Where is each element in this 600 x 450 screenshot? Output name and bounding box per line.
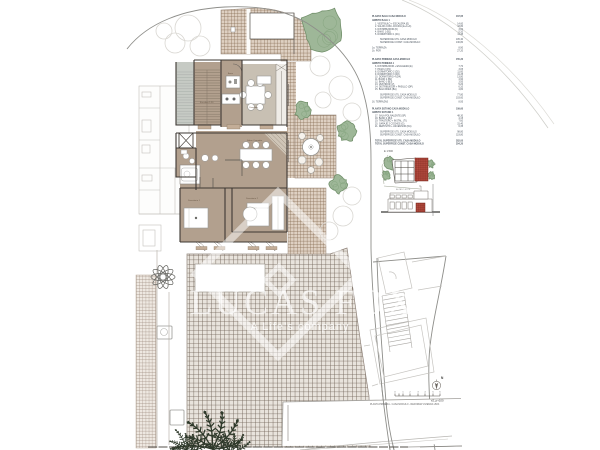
svg-text:PLANTA PRIMERA CASA MODULO: PLANTA PRIMERA CASA MODULO (372, 58, 410, 61)
svg-text:8,90: 8,90 (459, 48, 464, 50)
svg-text:109,60: 109,60 (456, 109, 464, 111)
svg-text:18. BANO 4 (B4): 18. BANO 4 (B4) (375, 117, 392, 120)
svg-text:AMBITO BAJA 1: AMBITO BAJA 1 (372, 19, 390, 22)
svg-text:12. BANO 3 (B3): 12. BANO 3 (B3) (375, 81, 392, 84)
svg-text:Terraza: Terraza (303, 129, 311, 132)
svg-text:119,80: 119,80 (456, 135, 464, 137)
svg-text:AMBITO SOTANO 1: AMBITO SOTANO 1 (372, 111, 394, 114)
svg-text:130,80: 130,80 (456, 42, 464, 44)
svg-text:SUPERFICIE UTIL CASA MODULO: SUPERFICIE UTIL CASA MODULO (380, 38, 417, 41)
svg-text:6,35: 6,35 (459, 126, 464, 128)
svg-text:PLANTA PRIMERA - CASA MODULO -: PLANTA PRIMERA - CASA MODULO - REFORMA V… (370, 403, 440, 406)
svg-text:16. TERRAZAS: 16. TERRAZAS (372, 101, 389, 104)
svg-text:21. DEPOSITO + ASCENSOR (DA): 21. DEPOSITO + ASCENSOR (DA) (375, 125, 412, 128)
svg-text:19. TRASTERO + INSTAL. (TI): 19. TRASTERO + INSTAL. (TI) (375, 120, 407, 123)
svg-text:8,95: 8,95 (459, 102, 464, 104)
svg-text:6. DISTRIBUIDOR + ESCALERA (E): 6. DISTRIBUIDOR + ESCALERA (E) (375, 65, 413, 68)
svg-text:LUCAS FOX: LUCAS FOX (190, 282, 416, 322)
svg-text:ALZADO ESTE: ALZADO ESTE (396, 188, 411, 191)
svg-text:SUPERFICIE CONST. CASA MODULO: SUPERFICIE CONST. CASA MODULO (380, 134, 421, 137)
svg-text:20. GARAJE 2 COCHES (G): 20. GARAJE 2 COCHES (G) (375, 122, 405, 125)
svg-text:27,20: 27,20 (457, 51, 463, 53)
svg-text:SUPERFICIE CONST. CASA MODULO: SUPERFICIE CONST. CASA MODULO (380, 41, 421, 44)
svg-text:5. DORMITORIO 1 (D1): 5. DORMITORIO 1 (D1) (375, 34, 400, 36)
svg-text:105,40: 105,40 (456, 39, 464, 41)
svg-text:E 1:500: E 1:500 (384, 149, 393, 153)
svg-text:SUPERFICIE UTIL CASA MODULO: SUPERFICIE UTIL CASA MODULO (380, 131, 417, 134)
svg-text:103,60: 103,60 (456, 98, 464, 100)
svg-text:354,20: 354,20 (456, 143, 464, 146)
svg-text:11,45: 11,45 (457, 34, 463, 36)
svg-text:Dormitorio 1: Dormitorio 1 (188, 199, 201, 202)
svg-text:Escalera 1:50: Escalera 1:50 (200, 101, 214, 104)
svg-text:Comedor: Comedor (249, 106, 258, 109)
svg-text:SUPERFICIE UTIL CASA MODULO: SUPERFICIE UTIL CASA MODULO (380, 94, 417, 97)
svg-text:282,00: 282,00 (456, 141, 464, 143)
svg-text:2. SALON-COM.-COCINA (E+C+K): 2. SALON-COM.-COCINA (E+C+K) (375, 25, 411, 28)
svg-text:Dormitorio 2: Dormitorio 2 (246, 197, 259, 200)
svg-text:17. SALA POLIVALENTE (SP): 17. SALA POLIVALENTE (SP) (375, 115, 406, 118)
svg-text:98,80: 98,80 (457, 132, 463, 134)
svg-text:7. PASO 2 (P2): 7. PASO 2 (P2) (375, 68, 391, 71)
svg-text:4,80: 4,80 (459, 89, 464, 91)
svg-text:A Life’s company: A Life’s company (251, 321, 350, 333)
svg-text:e2_p+100: e2_p+100 (431, 399, 444, 403)
svg-text:77,80: 77,80 (457, 95, 463, 97)
svg-text:1b. POR: 1b. POR (372, 51, 381, 53)
svg-text:Aseo: Aseo (228, 72, 234, 75)
svg-text:TOTAL SUPERFICIE UTIL CASA MOD: TOTAL SUPERFICIE UTIL CASA MODULO (375, 140, 421, 143)
svg-text:1a. TERRAZA: 1a. TERRAZA (372, 47, 387, 50)
svg-text:1. VESTIBULO + ESCALERA (E): 1. VESTIBULO + ESCALERA (E) (375, 23, 409, 26)
svg-text:PLANTA SOTANO CASA MODULO: PLANTA SOTANO CASA MODULO (372, 108, 409, 111)
svg-text:SUPERFICIE CONST. CASA MODULO: SUPERFICIE CONST. CASA MODULO (380, 97, 421, 100)
svg-text:Salon Comedor: Salon Comedor (247, 139, 262, 142)
svg-text:TOTAL SUPERFICIE CONST. CASA M: TOTAL SUPERFICIE CONST. CASA MODULO (375, 143, 424, 146)
svg-text:4. BANO 1 (B1): 4. BANO 1 (B1) (375, 30, 391, 33)
svg-text:AMBITO PRIMERA 1: AMBITO PRIMERA 1 (372, 62, 395, 65)
svg-text:PLANTA BAJA CASA MODULO: PLANTA BAJA CASA MODULO (372, 15, 406, 18)
svg-text:11. BANO 2 (B2): 11. BANO 2 (B2) (375, 78, 392, 81)
svg-text:167,65: 167,65 (456, 16, 464, 18)
svg-text:155,20: 155,20 (456, 59, 464, 61)
svg-text:14. DISTRIBUIDOR + PASILLO (DP: 14. DISTRIBUIDOR + PASILLO (DP) (375, 86, 413, 89)
svg-text:15. BALCONES (BA): 15. BALCONES (BA) (375, 88, 397, 91)
